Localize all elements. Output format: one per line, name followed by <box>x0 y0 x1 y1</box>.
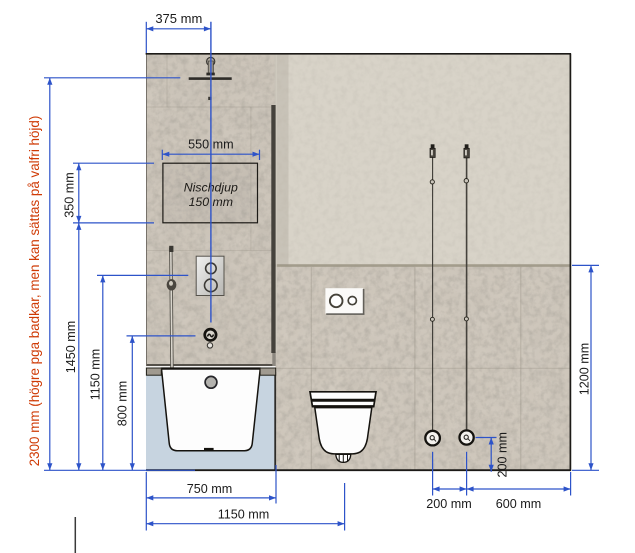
svg-text:200 mm: 200 mm <box>426 497 472 511</box>
svg-text:800 mm: 800 mm <box>116 381 130 427</box>
svg-text:375 mm: 375 mm <box>155 11 202 26</box>
svg-text:200 mm: 200 mm <box>496 432 510 478</box>
svg-text:2300 mm (högre pga badkar, men: 2300 mm (högre pga badkar, men kan sätta… <box>27 116 42 467</box>
svg-text:1150 mm: 1150 mm <box>218 508 270 522</box>
svg-text:550 mm: 550 mm <box>188 138 234 152</box>
svg-text:600 mm: 600 mm <box>496 497 542 511</box>
svg-text:1450 mm: 1450 mm <box>64 321 78 374</box>
svg-text:350 mm: 350 mm <box>63 172 77 218</box>
svg-text:1200 mm: 1200 mm <box>578 343 592 396</box>
svg-text:1150 mm: 1150 mm <box>88 349 102 401</box>
svg-text:750 mm: 750 mm <box>187 482 233 496</box>
